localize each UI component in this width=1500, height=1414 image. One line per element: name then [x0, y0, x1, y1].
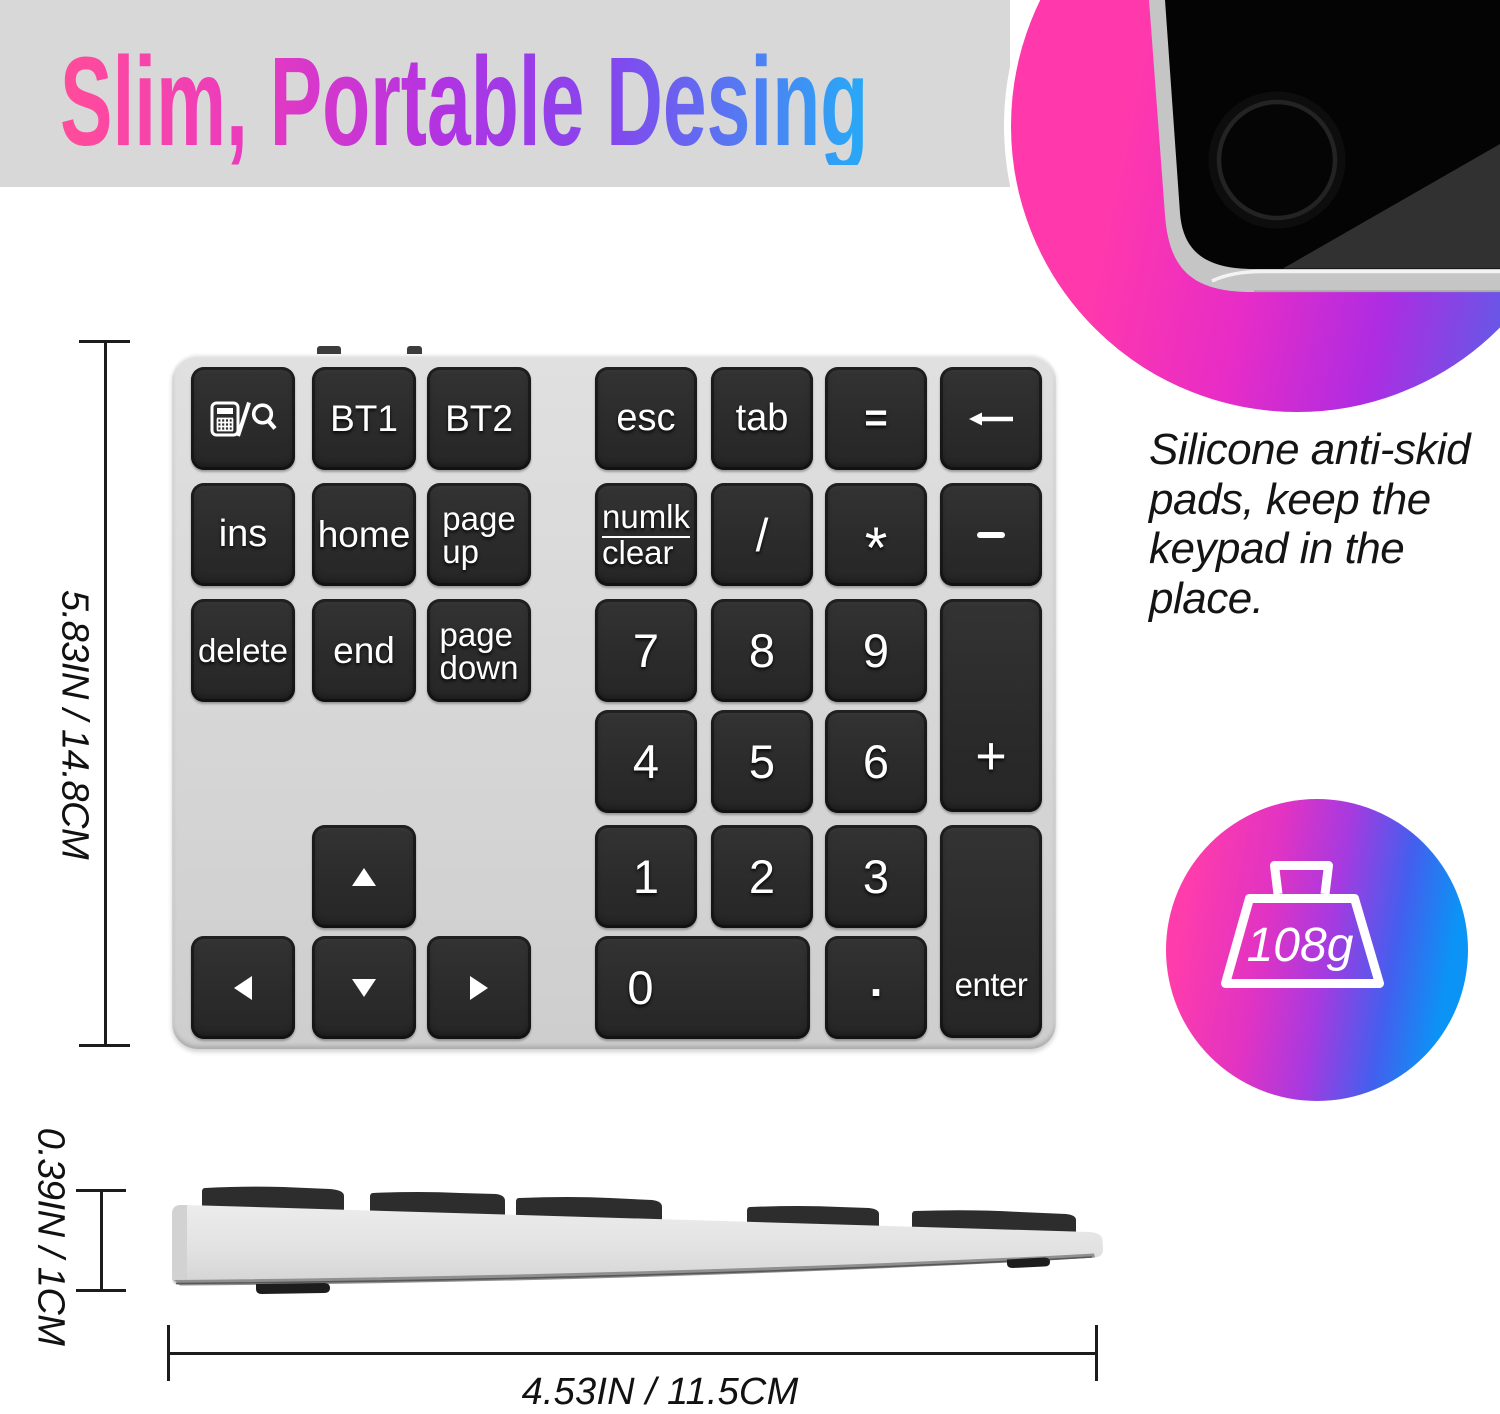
svg-text:108g: 108g [1247, 919, 1354, 972]
